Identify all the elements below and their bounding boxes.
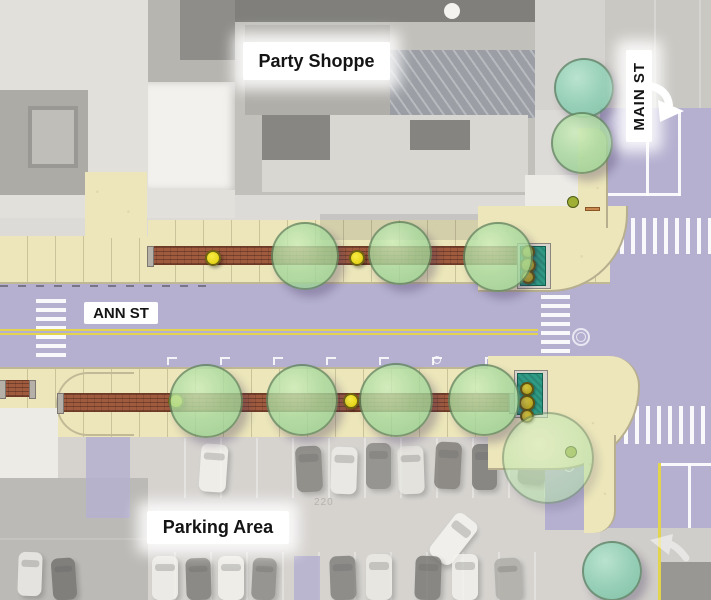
street-light-icon: [205, 250, 221, 266]
street-tree: [448, 364, 520, 436]
street-tree: [551, 112, 613, 174]
plan-features-layer: [0, 0, 711, 600]
bollard-icon: [520, 382, 534, 396]
street-tree: [368, 221, 432, 285]
street-tree: [582, 541, 642, 600]
label-party-shoppe: Party Shoppe: [243, 42, 390, 80]
streetscape-plan: 220: [0, 0, 711, 600]
street-tree: [359, 363, 433, 437]
street-tree: [554, 58, 614, 118]
label-ann-st: ANN ST: [84, 302, 158, 324]
street-tree: [266, 364, 338, 436]
label-parking-area: Parking Area: [147, 511, 289, 544]
street-tree: [502, 412, 594, 504]
street-tree: [169, 364, 243, 438]
shrub-icon: [567, 196, 579, 208]
bench-icon: [585, 207, 600, 211]
label-main-st: MAIN ST: [626, 50, 652, 142]
street-tree: [271, 222, 339, 290]
street-light-icon: [349, 250, 365, 266]
street-light-icon: [343, 393, 359, 409]
street-tree: [463, 222, 533, 292]
